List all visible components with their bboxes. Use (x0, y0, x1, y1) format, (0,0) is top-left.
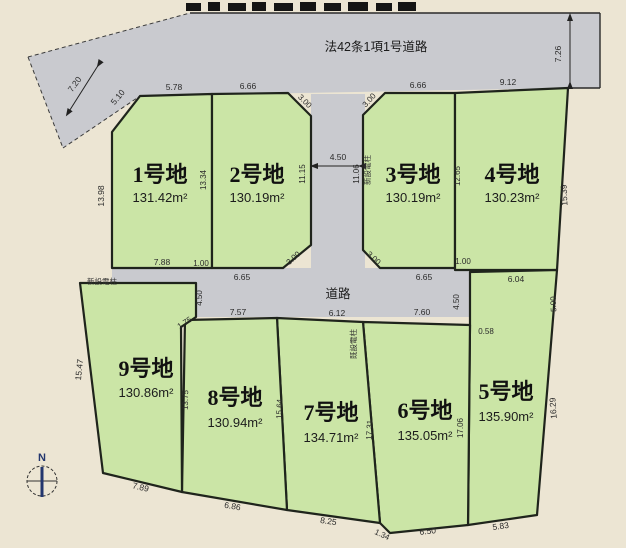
dim-5-00: 5.00 (549, 296, 559, 313)
dim-17-31: 17.31 (364, 419, 374, 440)
dim-13-75: 13.75 (181, 389, 190, 410)
new-utility-pole-label-plot9: 新設電柱 (87, 276, 117, 286)
plot-5-name: 5号地 (478, 379, 533, 404)
plot-5-area: 135.90m² (479, 409, 535, 424)
dim-6-50: 6.50 (419, 525, 437, 537)
dim-9-12: 9.12 (500, 77, 517, 87)
dim-7-60: 7.60 (414, 307, 431, 317)
dim-7-88: 7.88 (154, 257, 171, 267)
dim-6-12: 6.12 (329, 308, 346, 318)
plot-9-area: 130.86m² (119, 385, 175, 400)
plot-2-name: 2号地 (229, 162, 284, 187)
dim-0-58: 0.58 (478, 327, 494, 336)
plot-4-area: 130.23m² (485, 190, 541, 205)
dim-6-66-b: 6.66 (410, 80, 427, 90)
dim-1-00-a: 1.00 (193, 259, 209, 268)
plot-3-area: 130.19m² (386, 190, 442, 205)
plot-2-area: 130.19m² (230, 190, 286, 205)
plot-8-name: 8号地 (207, 385, 262, 410)
plot-4-name: 4号地 (484, 162, 539, 187)
plot-6-name: 6号地 (397, 398, 452, 423)
plot-8-shape[interactable] (182, 318, 287, 510)
dim-15-64: 15.64 (275, 398, 285, 419)
dim-16-29: 16.29 (547, 397, 558, 419)
svg-text:7.26: 7.26 (553, 45, 563, 62)
new-utility-pole-label-strip: 新設電柱 (362, 155, 372, 185)
plot-9-name: 9号地 (118, 356, 173, 381)
dim-17-06: 17.06 (456, 417, 465, 438)
dim-15-39: 15.39 (558, 184, 569, 206)
dim-6-04: 6.04 (508, 274, 525, 284)
dim-13-34: 13.34 (199, 169, 208, 190)
top-road-label: 法42条1項1号道路 (325, 39, 428, 54)
dim-6-65-b: 6.65 (416, 272, 433, 282)
site-plan-svg: 法42条1項1号道路 道路 1号地 131.42m² 2号地 130.19m² … (0, 0, 626, 548)
dim-13-98: 13.98 (96, 185, 106, 207)
dim-12-65: 12.65 (453, 165, 462, 186)
plot-6-area: 135.05m² (398, 428, 454, 443)
land-plot-diagram: 法42条1項1号道路 道路 1号地 131.42m² 2号地 130.19m² … (0, 0, 626, 548)
dim-11-06: 11.06 (352, 164, 361, 184)
dim-5-78: 5.78 (166, 82, 183, 92)
dim-4-50-left: 4.50 (195, 290, 204, 306)
plot-7-name: 7号地 (303, 400, 358, 425)
existing-utility-pole-label: 既設電柱 (348, 329, 358, 359)
plot-7-area: 134.71m² (304, 430, 360, 445)
dim-6-65-a: 6.65 (234, 272, 251, 282)
dim-11-15: 11.15 (298, 164, 307, 184)
plot-1-area: 131.42m² (133, 190, 189, 205)
compass-north-label: N (38, 452, 46, 464)
middle-road-label: 道路 (325, 286, 351, 301)
plot-8-area: 130.94m² (208, 415, 264, 430)
dim-1-00-b: 1.00 (455, 257, 471, 266)
dim-4-50-right: 4.50 (452, 294, 461, 310)
dim-7-57: 7.57 (230, 307, 247, 317)
dim-6-66-a: 6.66 (240, 81, 257, 91)
plot-3-name: 3号地 (385, 162, 440, 187)
plot-1-name: 1号地 (132, 162, 187, 187)
svg-text:4.50: 4.50 (330, 152, 347, 162)
